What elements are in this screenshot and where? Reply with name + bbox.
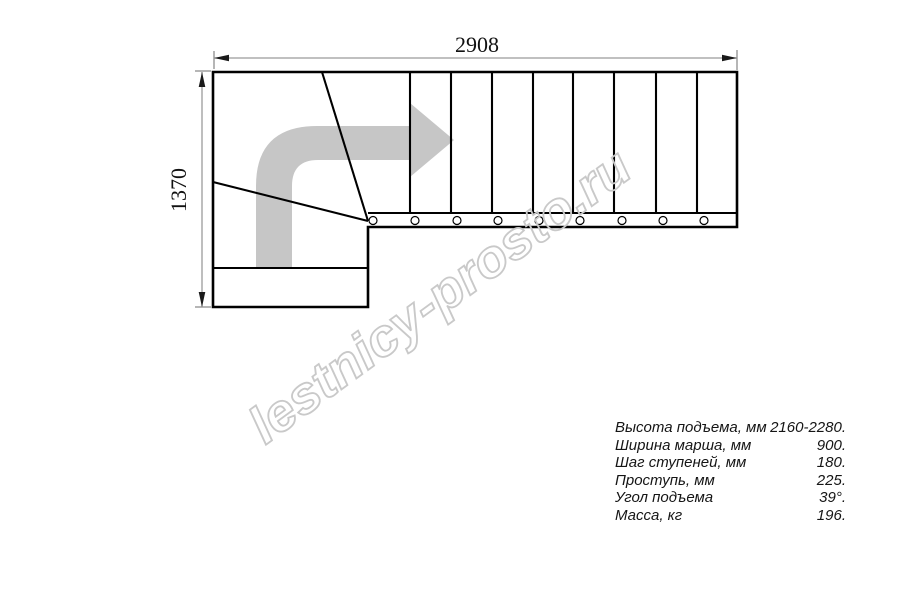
- spec-value: 900.: [817, 437, 846, 455]
- dimension-width-label: 2908: [455, 32, 499, 57]
- spec-row-tread: Проступь, мм 225.: [615, 472, 846, 490]
- dim-arrowhead-bottom: [199, 292, 206, 307]
- spec-value: 39°.: [819, 489, 846, 507]
- dimension-height-label: 1370: [166, 168, 191, 212]
- spec-label: Масса, кг: [615, 507, 682, 525]
- dim-arrowhead-top: [199, 72, 206, 87]
- spec-value: 180.: [817, 454, 846, 472]
- spec-row-height: Высота подъема, мм 2160-2280.: [615, 419, 846, 437]
- dim-arrowhead-right: [722, 55, 737, 62]
- dimension-height: 1370: [166, 71, 211, 307]
- spec-value: 225.: [817, 472, 846, 490]
- watermark-text: lestnicy-prosto.ru: [238, 138, 642, 455]
- spec-label: Угол подъема: [615, 489, 713, 507]
- spec-label: Ширина марша, мм: [615, 437, 751, 455]
- dimension-width: 2908: [214, 32, 737, 70]
- dim-arrowhead-left: [214, 55, 229, 62]
- spec-value: 196.: [817, 507, 846, 525]
- direction-arrow: [256, 103, 454, 267]
- spec-row-angle: Угол подъема 39°.: [615, 489, 846, 507]
- spec-row-flight-width: Ширина марша, мм 900.: [615, 437, 846, 455]
- spec-row-step-pitch: Шаг ступеней, мм 180.: [615, 454, 846, 472]
- spec-label: Проступь, мм: [615, 472, 715, 490]
- spec-table: Высота подъема, мм 2160-2280. Ширина мар…: [615, 419, 846, 524]
- spec-label: Шаг ступеней, мм: [615, 454, 746, 472]
- spec-label: Высота подъема, мм: [615, 419, 767, 437]
- spec-value: 2160-2280.: [770, 419, 846, 437]
- spec-row-mass: Масса, кг 196.: [615, 507, 846, 525]
